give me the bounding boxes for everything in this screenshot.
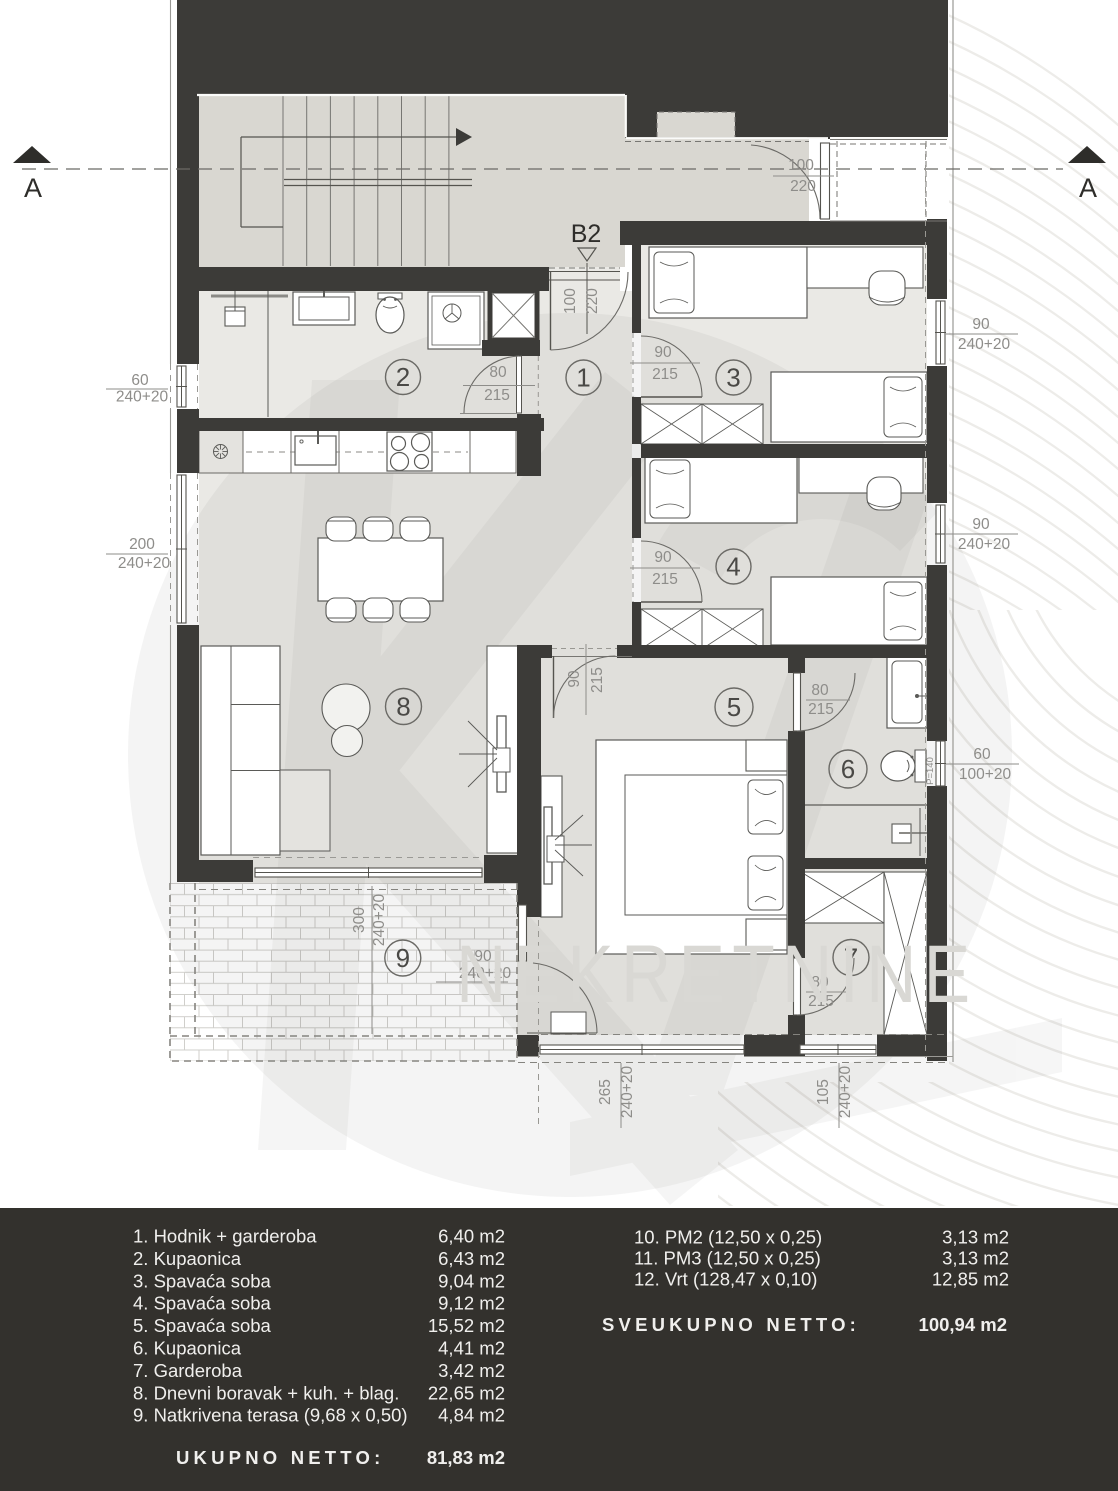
svg-text:1: 1 [576,363,590,393]
svg-text:5: 5 [727,692,741,722]
svg-text:240+20: 240+20 [958,536,1011,553]
svg-text:7. Garderoba: 7. Garderoba [133,1360,243,1381]
svg-text:2: 2 [396,362,410,392]
svg-text:15,52 m2: 15,52 m2 [428,1315,505,1336]
svg-text:B2: B2 [571,220,602,248]
svg-text:4: 4 [726,552,740,582]
svg-text:90: 90 [972,516,990,533]
svg-text:80: 80 [489,364,507,381]
svg-text:90: 90 [566,670,583,688]
svg-text:3,13 m2: 3,13 m2 [942,1227,1009,1248]
svg-text:3,42 m2: 3,42 m2 [438,1360,505,1381]
svg-text:215: 215 [652,571,678,588]
svg-text:265: 265 [597,1079,614,1105]
svg-text:9: 9 [396,943,410,973]
svg-text:240+20: 240+20 [837,1066,854,1119]
svg-text:200: 200 [129,536,155,553]
svg-text:8: 8 [396,692,410,722]
svg-text:80: 80 [811,682,829,699]
svg-text:220: 220 [790,178,816,195]
svg-text:240+20: 240+20 [371,894,388,947]
svg-text:90: 90 [654,549,672,566]
svg-text:9,12 m2: 9,12 m2 [438,1293,505,1314]
svg-text:10. PM2 (12,50 x 0,25): 10. PM2 (12,50 x 0,25) [634,1227,822,1248]
svg-text:6,43 m2: 6,43 m2 [438,1248,505,1269]
svg-text:240+20: 240+20 [619,1066,636,1119]
svg-text:4,41 m2: 4,41 m2 [438,1338,505,1359]
svg-text:90: 90 [654,344,672,361]
svg-text:1. Hodnik + garderoba: 1. Hodnik + garderoba [133,1226,317,1247]
svg-text:3,13 m2: 3,13 m2 [942,1248,1009,1269]
svg-text:100: 100 [788,157,814,174]
svg-text:6,40 m2: 6,40 m2 [438,1226,505,1247]
svg-text:22,65 m2: 22,65 m2 [428,1382,505,1403]
svg-text:240+20: 240+20 [118,555,171,572]
svg-text:9,04 m2: 9,04 m2 [438,1270,505,1291]
svg-text:105: 105 [815,1079,832,1105]
svg-text:100: 100 [562,288,579,314]
svg-text:9. Natkrivena terasa (9,68 x 0: 9. Natkrivena terasa (9,68 x 0,50) [133,1405,408,1426]
svg-text:2. Kupaonica: 2. Kupaonica [133,1248,242,1269]
svg-text:220: 220 [584,288,601,314]
svg-text:215: 215 [652,366,678,383]
svg-text:A: A [1079,173,1097,203]
svg-text:3. Spavaća soba: 3. Spavaća soba [133,1270,272,1291]
svg-text:215: 215 [589,667,606,693]
svg-text:UKUPNO NETTO:: UKUPNO NETTO: [176,1447,384,1468]
svg-text:4,84 m2: 4,84 m2 [438,1405,505,1426]
svg-text:100,94 m2: 100,94 m2 [919,1314,1007,1335]
svg-text:6: 6 [841,754,855,784]
svg-text:A: A [24,173,42,203]
svg-text:240+20: 240+20 [958,336,1011,353]
svg-text:P=140: P=140 [925,757,936,785]
svg-text:240+20: 240+20 [116,389,169,406]
svg-text:100+20: 100+20 [959,766,1012,783]
svg-text:4. Spavaća soba: 4. Spavaća soba [133,1293,272,1314]
svg-text:215: 215 [808,701,834,718]
svg-text:90: 90 [972,316,990,333]
svg-text:5. Spavaća soba: 5. Spavaća soba [133,1315,272,1336]
svg-text:11. PM3 (12,50 x 0,25): 11. PM3 (12,50 x 0,25) [634,1248,821,1269]
svg-text:300: 300 [351,907,368,933]
svg-text:8. Dnevni boravak + kuh. + bla: 8. Dnevni boravak + kuh. + blag. [133,1382,399,1403]
svg-text:12,85 m2: 12,85 m2 [932,1269,1009,1290]
svg-text:215: 215 [484,387,510,404]
svg-text:6. Kupaonica: 6. Kupaonica [133,1338,242,1359]
svg-text:SVEUKUPNO NETTO:: SVEUKUPNO NETTO: [602,1314,860,1335]
svg-text:81,83 m2: 81,83 m2 [427,1447,505,1468]
svg-text:60: 60 [973,746,991,763]
svg-text:12. Vrt (128,47 x 0,10): 12. Vrt (128,47 x 0,10) [634,1269,817,1290]
svg-text:NEKRETNINE: NEKRETNINE [456,929,977,1021]
svg-text:3: 3 [726,363,740,393]
svg-text:60: 60 [131,372,149,389]
